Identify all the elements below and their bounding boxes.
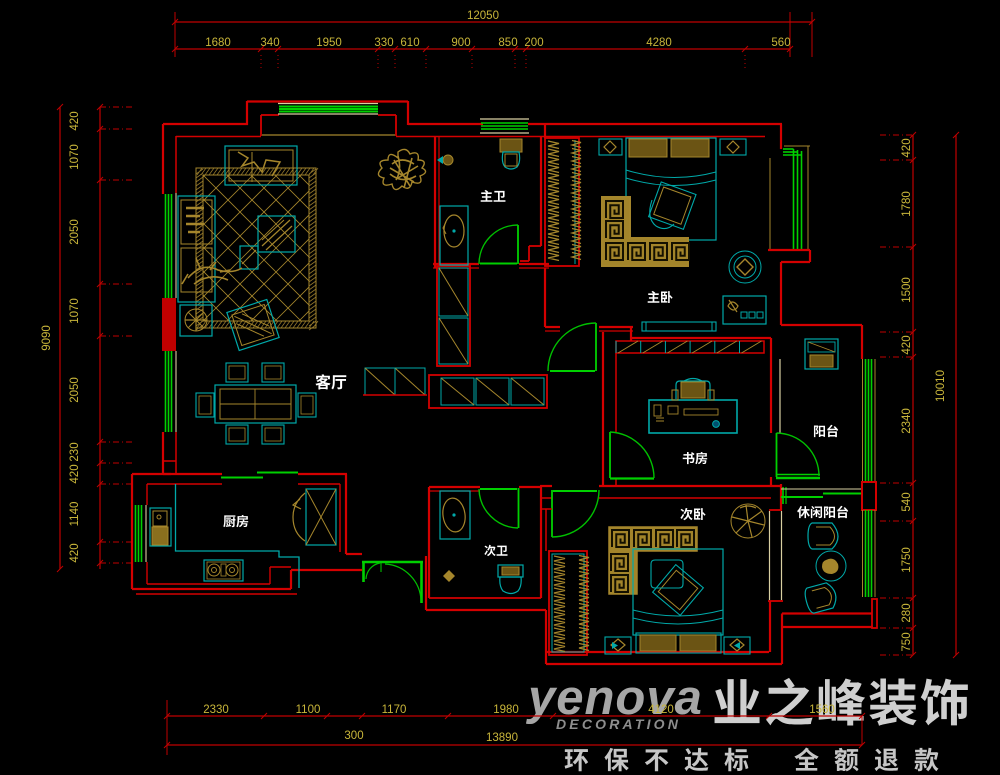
- svg-text:420: 420: [901, 138, 913, 157]
- svg-text:DECORATION: DECORATION: [556, 716, 681, 732]
- svg-text:420: 420: [69, 464, 81, 483]
- svg-text:850: 850: [498, 37, 517, 49]
- svg-text:1100: 1100: [296, 704, 321, 716]
- svg-text:13890: 13890: [486, 732, 518, 744]
- svg-text:4120: 4120: [648, 704, 674, 716]
- svg-text:1950: 1950: [316, 37, 342, 49]
- svg-text:1780: 1780: [901, 191, 913, 217]
- svg-text:230: 230: [69, 442, 81, 461]
- svg-text:540: 540: [901, 492, 913, 511]
- svg-text:750: 750: [901, 632, 913, 651]
- svg-text:200: 200: [524, 37, 543, 49]
- svg-text:2330: 2330: [203, 704, 229, 716]
- svg-text:2050: 2050: [69, 377, 81, 403]
- svg-text:9090: 9090: [41, 325, 53, 351]
- svg-text:1170: 1170: [382, 704, 407, 716]
- svg-text:1560: 1560: [809, 704, 835, 716]
- svg-text:420: 420: [69, 543, 81, 562]
- svg-text:1980: 1980: [493, 704, 519, 716]
- svg-text:560: 560: [771, 37, 790, 49]
- svg-text:10010: 10010: [935, 370, 947, 402]
- svg-text:1500: 1500: [901, 277, 913, 303]
- svg-text:610: 610: [400, 37, 419, 49]
- svg-text:1070: 1070: [69, 144, 81, 170]
- svg-text:420: 420: [901, 335, 913, 354]
- svg-text:1750: 1750: [901, 547, 913, 573]
- svg-text:300: 300: [344, 730, 363, 742]
- svg-text:2340: 2340: [901, 408, 913, 434]
- svg-text:280: 280: [901, 603, 913, 622]
- svg-text:420: 420: [69, 111, 81, 130]
- svg-text:1680: 1680: [205, 37, 231, 49]
- svg-text:330: 330: [374, 37, 393, 49]
- svg-text:4280: 4280: [646, 37, 672, 49]
- svg-text:900: 900: [451, 37, 470, 49]
- svg-text:1140: 1140: [69, 502, 81, 527]
- svg-text:340: 340: [260, 37, 279, 49]
- svg-text:1070: 1070: [69, 298, 81, 324]
- svg-text:2050: 2050: [69, 219, 81, 245]
- svg-text:12050: 12050: [467, 10, 499, 22]
